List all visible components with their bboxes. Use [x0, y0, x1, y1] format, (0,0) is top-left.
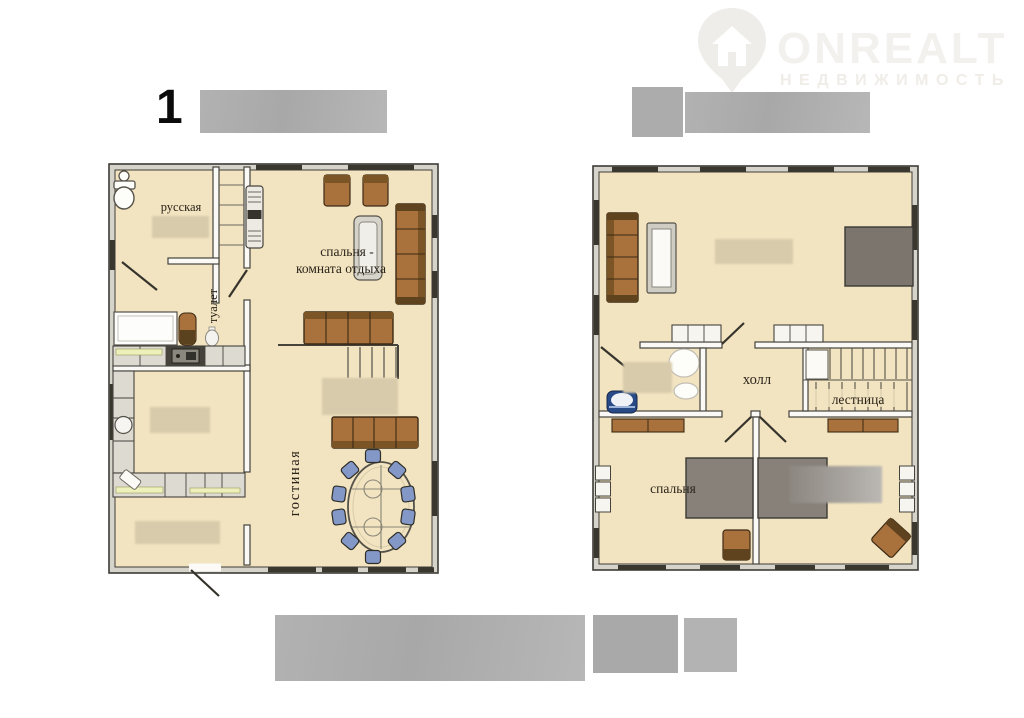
staircase-label: лестница [832, 392, 885, 407]
sauna-stove-icon [246, 186, 263, 248]
redacted-blur [135, 521, 220, 544]
sofa-icon [607, 213, 638, 302]
armchair-2 [363, 175, 388, 206]
redacted-blur [152, 216, 209, 238]
sink-icon [115, 417, 132, 434]
redacted-floor2-number [632, 87, 683, 137]
sofa-lower [332, 417, 418, 448]
redacted-floor2-title [685, 92, 870, 133]
floorplan-page: ONREALT НЕДВИЖИМОСТЬ 1 [0, 0, 1024, 718]
sofa-right-wall [396, 204, 425, 304]
kitchen-counter-bottom [113, 469, 245, 497]
redacted-blur [150, 407, 210, 433]
redacted-blur [715, 239, 793, 264]
bedroom-rest-label-line2: комната отдыха [296, 261, 386, 276]
stair-landing [806, 350, 828, 379]
floor1-plan: русская туалет спальня - комната отдыха … [105, 160, 445, 605]
redacted-floor1-title [200, 90, 387, 133]
washbasin-icon [607, 391, 637, 413]
redacted-caption-medium [593, 615, 678, 673]
bed-icon [845, 227, 913, 286]
toilet-icon [669, 349, 699, 377]
living-room-label: гостиная [287, 450, 303, 517]
bidet-icon [674, 383, 698, 399]
kitchen-counter-left [113, 371, 134, 473]
redacted-blur [790, 466, 882, 503]
redacted-blur [623, 362, 672, 393]
bed-left-icon [686, 458, 753, 518]
watermark-logo: ONREALT НЕДВИЖИМОСТЬ [693, 4, 1023, 100]
logo-pin-icon [693, 4, 771, 96]
sauna-label: русская [161, 200, 202, 214]
redacted-blur [322, 378, 398, 415]
entrance-opening [189, 564, 221, 572]
redacted-caption-small [684, 618, 737, 672]
armchair-1 [324, 175, 350, 206]
armchair-bottom-icon [723, 530, 750, 560]
entrance-door-leaf [191, 570, 219, 596]
redacted-caption-large [275, 615, 585, 681]
toilet-bowl-icon [114, 187, 134, 209]
toilet-flush-icon [119, 171, 129, 181]
hall-label: холл [743, 372, 771, 388]
bedroom-rest-label-line1: спальня - [320, 244, 374, 259]
kitchen-counter-top [113, 346, 245, 366]
toilet-label: туалет [206, 288, 220, 323]
floor1-number: 1 [156, 80, 183, 135]
dresser-icon [647, 223, 676, 293]
bedroom-label: спальня [650, 481, 696, 496]
logo-brand-text: ONREALT [777, 24, 1007, 74]
fridge-icon [114, 312, 177, 345]
sofa-upper [304, 312, 393, 344]
logo-subtitle-text: НЕДВИЖИМОСТЬ [780, 72, 1011, 90]
floor2-plan: холл лестница спальня [583, 158, 927, 582]
